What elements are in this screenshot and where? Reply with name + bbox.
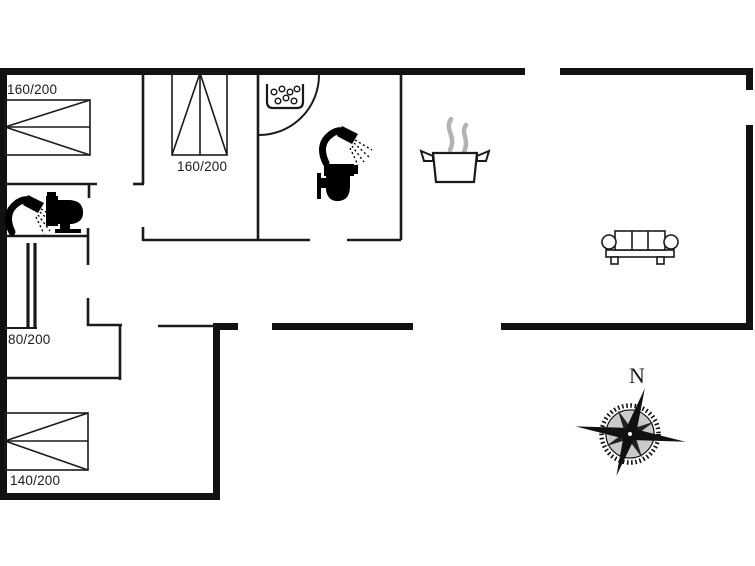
- bed-size-label: 160/200: [177, 159, 227, 174]
- bed-size-label: 140/200: [10, 473, 60, 488]
- wall-top-right-segment: [560, 68, 753, 75]
- wall-right-upper: [746, 68, 753, 90]
- whirlpool-tub-icon: [267, 84, 303, 108]
- bed-single-80: [4, 243, 37, 328]
- bed-top-left-160: [5, 100, 90, 155]
- wall-bottom-middle: [272, 323, 413, 330]
- wall-annex-right: [213, 323, 220, 500]
- wall-right-lower: [746, 125, 753, 330]
- wall-annex-bottom: [0, 493, 220, 500]
- sofa-icon: [602, 231, 678, 264]
- compass-north-label: N: [629, 363, 645, 389]
- floor-plan-page: 160/200 160/200 80/200 140/200 N: [0, 0, 755, 566]
- bed-bottom-left-140: [5, 413, 88, 470]
- compass-rose-icon: [575, 386, 687, 477]
- shower-icon: [323, 126, 372, 165]
- toilet-icon: [46, 192, 83, 233]
- bed-middle-160: [172, 73, 227, 155]
- steam-line: [464, 125, 466, 152]
- wall-bottom-right: [501, 323, 753, 330]
- bed-size-label: 160/200: [7, 82, 57, 97]
- bed-size-label: 80/200: [8, 332, 51, 347]
- wall-top-left-segment: [2, 68, 525, 75]
- wall-left: [0, 68, 7, 500]
- steam-line: [449, 119, 452, 150]
- cooking-pot-icon: [421, 119, 489, 182]
- floor-plan-drawing: [0, 0, 755, 566]
- toilet-icon: [317, 164, 358, 201]
